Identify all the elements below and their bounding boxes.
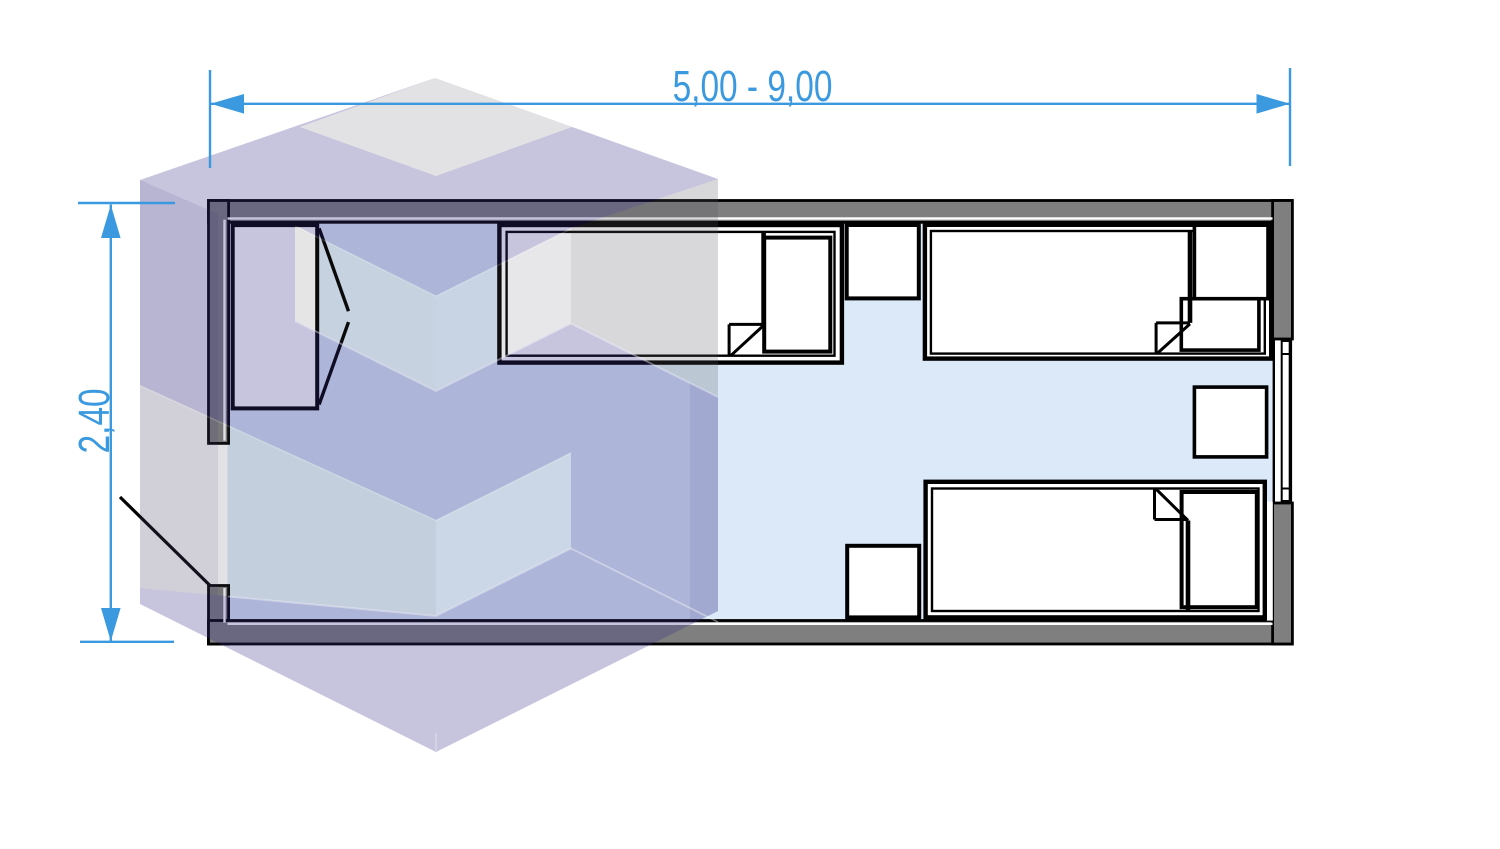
- svg-text:5,00 - 9,00: 5,00 - 9,00: [673, 63, 833, 111]
- svg-text:2,40: 2,40: [71, 388, 119, 453]
